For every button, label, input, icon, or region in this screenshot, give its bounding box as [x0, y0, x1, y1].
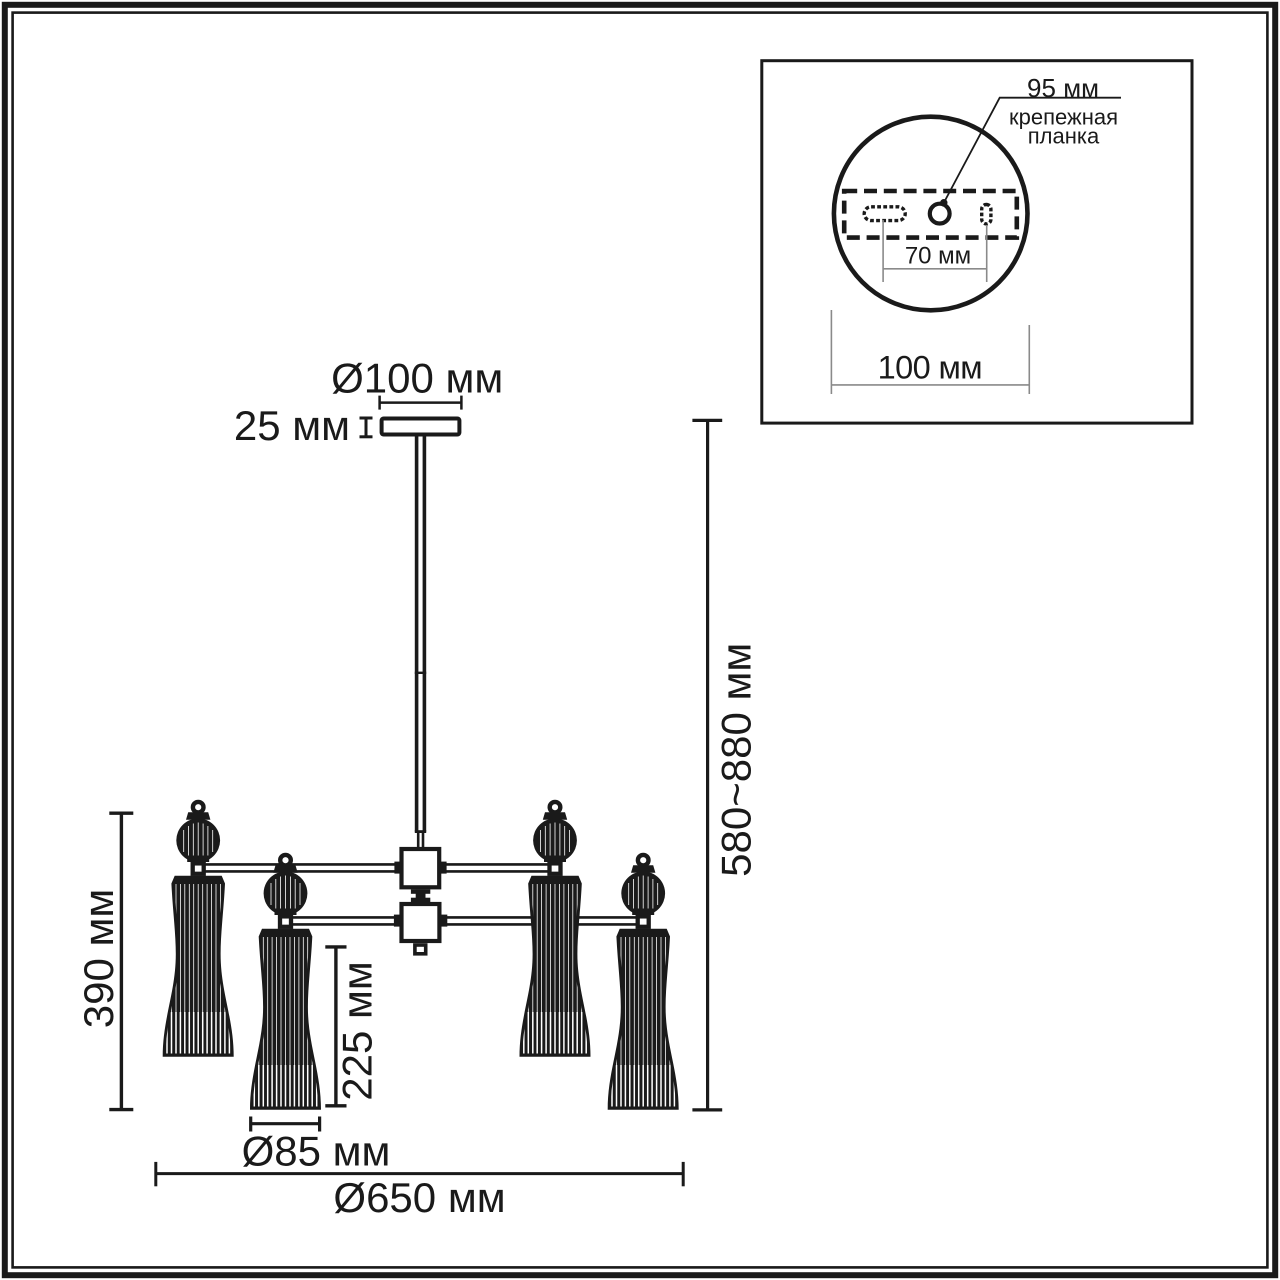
svg-text:580~880 мм: 580~880 мм — [713, 643, 760, 877]
svg-text:Ø650 мм: Ø650 мм — [333, 1174, 505, 1221]
svg-text:100 мм: 100 мм — [878, 350, 982, 386]
svg-text:95 мм: 95 мм — [1027, 73, 1099, 103]
svg-text:планка: планка — [1028, 124, 1100, 149]
svg-text:25 мм: 25 мм — [234, 402, 350, 449]
svg-text:70 мм: 70 мм — [905, 243, 971, 270]
svg-text:Ø85 мм: Ø85 мм — [242, 1128, 391, 1175]
svg-text:390 мм: 390 мм — [75, 889, 122, 1029]
svg-text:225 мм: 225 мм — [334, 961, 381, 1101]
svg-text:Ø100 мм: Ø100 мм — [331, 355, 503, 402]
